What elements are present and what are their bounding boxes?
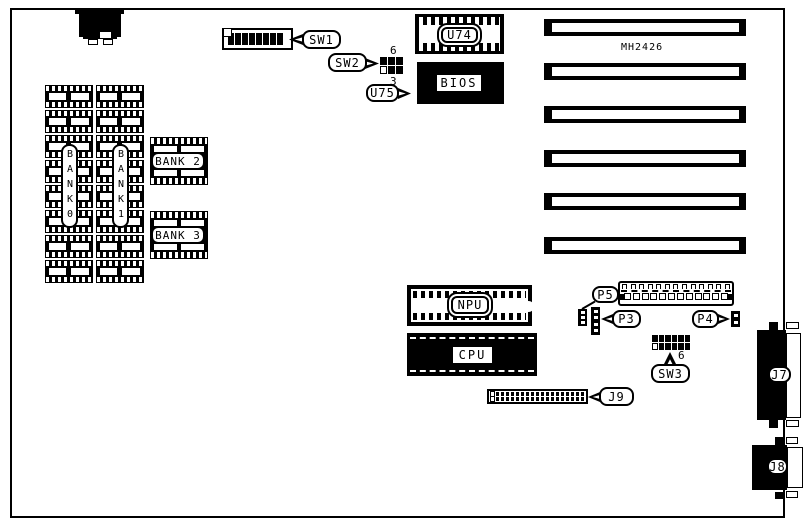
connector-pin (594, 323, 598, 326)
j9-pin (521, 397, 524, 401)
j9-pin (581, 392, 584, 396)
sw2-switch-cell (388, 66, 395, 74)
j8-post-bottom-outer (786, 491, 798, 498)
expansion-slot (544, 237, 746, 254)
bank0-label: BANK0 (61, 144, 78, 228)
bank1-label: BANK1 (112, 144, 129, 228)
j9-pin (526, 392, 529, 396)
motherboard-diagram: SW1 SW2 6 3 U75 U74 BIOS BANK0 BANK1 BAN… (0, 0, 806, 527)
j9-pin (491, 397, 494, 401)
j9-pin (501, 392, 504, 396)
j8-connector-outer (787, 447, 803, 488)
j9-pin (491, 392, 494, 396)
p5-pin (673, 284, 678, 289)
u74-pins-top (419, 17, 500, 25)
sw1-switch-cell (256, 33, 262, 45)
j9-pin (536, 397, 539, 401)
j9-pin (571, 397, 574, 401)
j9-pin (506, 392, 509, 396)
sw2-label: SW2 (328, 53, 367, 72)
sw2-switch-cell (396, 66, 403, 74)
p5-label: P5 (592, 286, 619, 303)
p4-label: P4 (692, 310, 719, 328)
sw3-switch-cell (659, 335, 665, 342)
p5-socket (668, 293, 675, 300)
npu-pins-bottom (413, 313, 526, 320)
p5-pin (622, 284, 627, 289)
p5-socket (642, 293, 649, 300)
p5-socket (721, 293, 728, 300)
p5-socket (659, 293, 666, 300)
sw2-switch-cell (388, 57, 395, 65)
j8-post-bottom-inner (775, 492, 784, 499)
expansion-slot (544, 193, 746, 210)
npu-notch (523, 301, 534, 312)
j9-pin (531, 397, 534, 401)
sw1-notch (223, 28, 232, 37)
j8-label: J8 (767, 458, 788, 475)
sw3-switch-cell (672, 343, 678, 350)
memory-chip (45, 260, 93, 283)
sw1-switch-cell (235, 33, 241, 45)
sw3-switch-cell (652, 343, 658, 350)
connector-pin (594, 310, 598, 313)
p5-target-connector (578, 309, 587, 326)
j9-pin (546, 392, 549, 396)
keyboard-connector-notch (100, 32, 111, 38)
bank3-label: BANK 3 (151, 226, 205, 244)
bios-label: BIOS (437, 75, 481, 91)
j9-pin (501, 397, 504, 401)
p5-pin (648, 284, 653, 289)
keyboard-connector (75, 8, 124, 46)
p5-socket (695, 293, 702, 300)
j9-pin (576, 392, 579, 396)
j9-pin (556, 392, 559, 396)
memory-chip (96, 235, 144, 258)
j9-pin (511, 397, 514, 401)
expansion-slot (544, 150, 746, 167)
sw1-switch-cell (270, 33, 276, 45)
j9-connector (487, 389, 588, 404)
j8-post-top-inner (775, 437, 784, 445)
j9-pin (511, 392, 514, 396)
npu-label: NPU (451, 296, 489, 314)
j9-pin (531, 392, 534, 396)
sw1-switch-cell (263, 33, 269, 45)
j7-post-top-inner (769, 322, 778, 330)
j9-pin (521, 392, 524, 396)
sw3-label: SW3 (651, 364, 690, 383)
j8-post-top-outer (786, 437, 798, 444)
memory-chip (96, 260, 144, 283)
u74-label: U74 (441, 27, 478, 43)
sw3-switch-cell (685, 343, 691, 350)
p5-socket (677, 293, 684, 300)
connector-pin (581, 311, 585, 314)
j9-pin (561, 397, 564, 401)
j9-pin (566, 392, 569, 396)
expansion-slot (544, 106, 746, 123)
board-id-text: MH2426 (621, 43, 663, 53)
p5-pin (725, 284, 730, 289)
j9-pin (496, 397, 499, 401)
j9-pin (541, 392, 544, 396)
j9-pin (571, 392, 574, 396)
j9-pin (581, 397, 584, 401)
sw2-pin6-number: 6 (390, 45, 397, 56)
bank2-label: BANK 2 (151, 152, 205, 170)
p5-end-right (728, 294, 732, 300)
sw2-switch-cell (396, 57, 403, 65)
sw3-switch-cell (672, 335, 678, 342)
p5-pin-row-bottom (624, 293, 728, 300)
memory-chip (96, 110, 144, 133)
expansion-slot (544, 63, 746, 80)
connector-pin (594, 316, 598, 319)
expansion-slots (544, 19, 746, 254)
j9-pin (551, 397, 554, 401)
sw1-switch-cell (249, 33, 255, 45)
p5-pin (708, 284, 713, 289)
p5-pin (665, 284, 670, 289)
u75-label: U75 (366, 84, 399, 102)
memory-chip (45, 85, 93, 108)
p5-pin (639, 284, 644, 289)
p5-end-left (620, 294, 624, 300)
memory-chip (96, 85, 144, 108)
p5-pin (656, 284, 661, 289)
sw3-switch-cell (659, 343, 665, 350)
p5-pin (682, 284, 687, 289)
sw1-switch-cell (277, 33, 283, 45)
sw3-switch-cell (685, 335, 691, 342)
p5-socket (624, 293, 631, 300)
p5-connector (618, 281, 734, 306)
j9-pin (526, 397, 529, 401)
keyboard-connector-tab-right (103, 39, 113, 45)
j9-pin (546, 397, 549, 401)
bank3-chip: BANK 3 (150, 211, 208, 259)
sw2-switch-cell (380, 57, 387, 65)
j9-pin (541, 397, 544, 401)
sw3-dip-switch (652, 335, 690, 350)
p5-pin-row-top (622, 284, 730, 289)
j9-pin (576, 397, 579, 401)
j9-pin (551, 392, 554, 396)
p5-divider (621, 290, 731, 292)
p5-pin (631, 284, 636, 289)
p3-connector (591, 307, 600, 335)
p5-socket (633, 293, 640, 300)
j9-pin (566, 397, 569, 401)
cpu-label: CPU (453, 347, 492, 363)
sw2-switch-cell (380, 66, 387, 74)
j9-pin (516, 397, 519, 401)
sw1-label: SW1 (302, 30, 341, 49)
memory-chip (45, 235, 93, 258)
connector-pin (734, 314, 738, 317)
p5-pin (699, 284, 704, 289)
p5-socket (650, 293, 657, 300)
j9-pin (506, 397, 509, 401)
j9-pin (561, 392, 564, 396)
j7-label: J7 (768, 366, 791, 383)
j7-post-top-outer (786, 322, 799, 329)
j7-post-bottom-inner (769, 420, 778, 428)
j9-label: J9 (599, 387, 634, 406)
connector-pin (581, 316, 585, 319)
sw2-dip-switch (380, 57, 403, 74)
bank2-chip: BANK 2 (150, 137, 208, 185)
keyboard-connector-tab-left (88, 39, 98, 45)
expansion-slot (544, 19, 746, 36)
p5-socket (686, 293, 693, 300)
p5-socket (712, 293, 719, 300)
p3-label: P3 (612, 310, 641, 328)
u74-pins-bottom (419, 43, 500, 51)
j9-pin (556, 397, 559, 401)
p5-socket (703, 293, 710, 300)
p5-pin (691, 284, 696, 289)
sw1-switch-cell (242, 33, 248, 45)
sw3-switch-cell (665, 335, 671, 342)
p4-target-connector (731, 311, 740, 327)
j7-post-bottom-outer (786, 420, 799, 427)
connector-pin (594, 329, 598, 332)
sw3-switch-cell (665, 343, 671, 350)
j9-pin (496, 392, 499, 396)
j9-pin (536, 392, 539, 396)
j9-pin (516, 392, 519, 396)
memory-chip (45, 110, 93, 133)
connector-pin (734, 321, 738, 324)
p5-pin (716, 284, 721, 289)
connector-pin (581, 321, 585, 324)
sw3-switch-cell (678, 335, 684, 342)
sw3-switch-cell (652, 335, 658, 342)
sw3-pin6-number: 6 (678, 350, 685, 361)
sw1-dip-switch (222, 28, 293, 50)
